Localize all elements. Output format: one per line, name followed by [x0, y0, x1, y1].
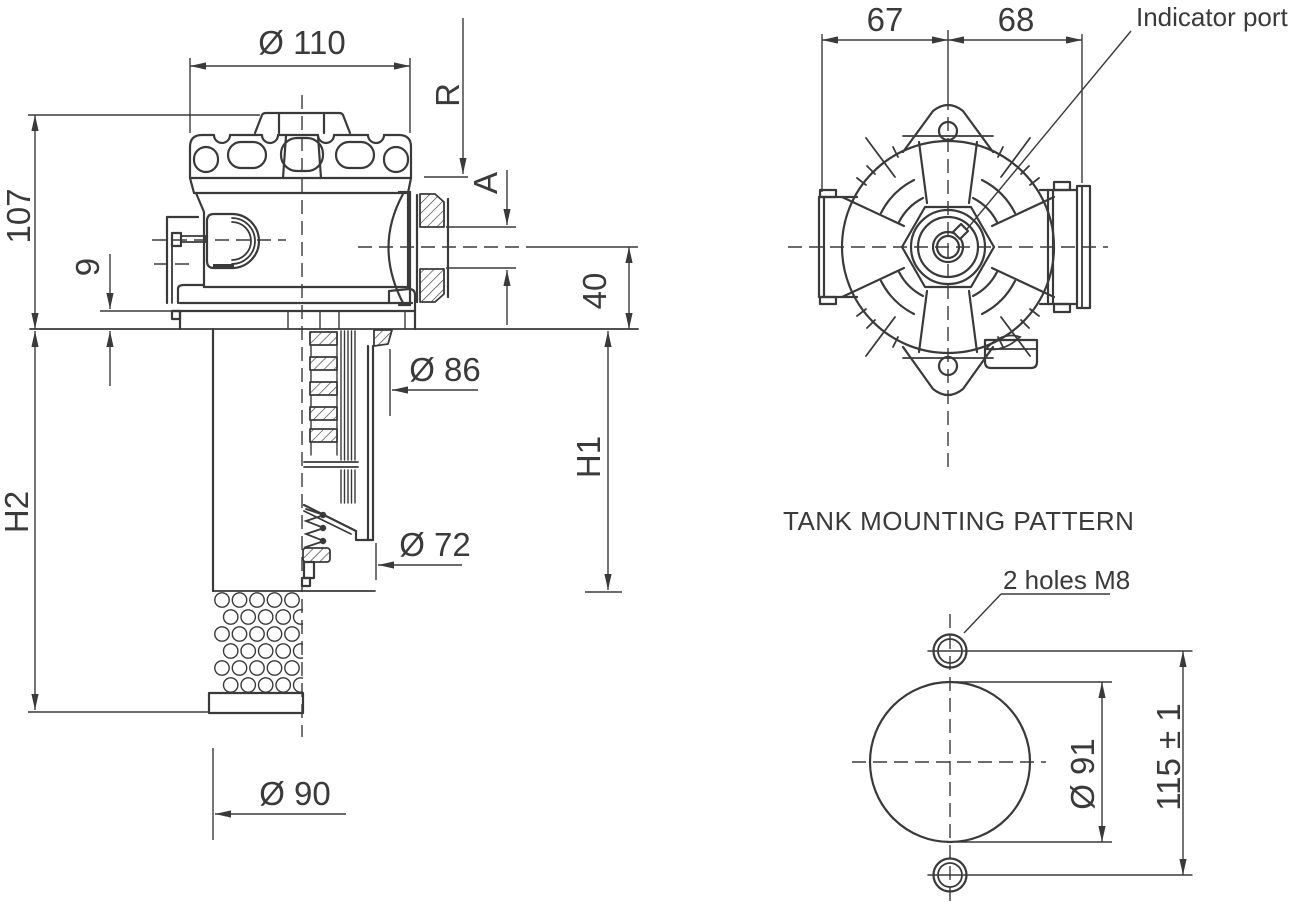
top-view: 67 68 Indicator port — [788, 1, 1289, 472]
dim-label-neck-diameter: Ø 86 — [409, 351, 481, 388]
side-view: Ø 110 R A 40 107 9 — [0, 18, 638, 840]
filter-technical-drawing: Ø 110 R A 40 107 9 — [0, 0, 1316, 908]
tank-mounting-pattern: TANK MOUNTING PATTERN 2 holes M8 Ø 91 — [783, 506, 1192, 906]
perforated-basket — [209, 591, 375, 713]
dim-label-cap-diameter: Ø 110 — [258, 24, 345, 61]
drawing-canvas: Ø 110 R A 40 107 9 — [0, 0, 1316, 908]
port-flange-section-top — [420, 194, 444, 227]
holes-note-label: 2 holes M8 — [1003, 565, 1130, 595]
dim-label-element-height: H1 — [570, 436, 607, 478]
dim-label-offset-right: 68 — [998, 1, 1035, 38]
dim-label-port-depth: 40 — [576, 273, 613, 310]
dim-label-basket-diameter: Ø 90 — [259, 775, 331, 812]
top-view-drain-boss — [985, 336, 1037, 369]
filter-cap — [190, 135, 411, 193]
dim-label-head-height: 107 — [0, 188, 37, 243]
filter-head — [30, 192, 638, 329]
dim-label-offset-left: 67 — [867, 1, 904, 38]
dim-label-total-depth: H2 — [0, 491, 35, 533]
dim-label-cutout-diameter: Ø 91 — [1064, 738, 1101, 810]
dim-label-return-port: R — [429, 83, 466, 107]
bowl-neck-section — [374, 330, 392, 346]
dim-label-port-thread: A — [467, 172, 504, 194]
port-flange-section-bottom — [420, 269, 444, 302]
top-view-dimensions: 67 68 Indicator port — [822, 1, 1289, 229]
dim-label-flange-thickness: 9 — [69, 258, 106, 276]
dim-label-element-diameter: Ø 72 — [399, 526, 471, 563]
mounting-pattern-title: TANK MOUNTING PATTERN — [783, 506, 1134, 536]
mounting-pattern-dimensions: 2 holes M8 Ø 91 115 ± 1 — [956, 565, 1187, 875]
indicator-port-label: Indicator port — [1136, 2, 1289, 32]
filter-bowl-section — [209, 329, 392, 713]
dim-label-hole-spacing: 115 ± 1 — [1150, 703, 1187, 810]
